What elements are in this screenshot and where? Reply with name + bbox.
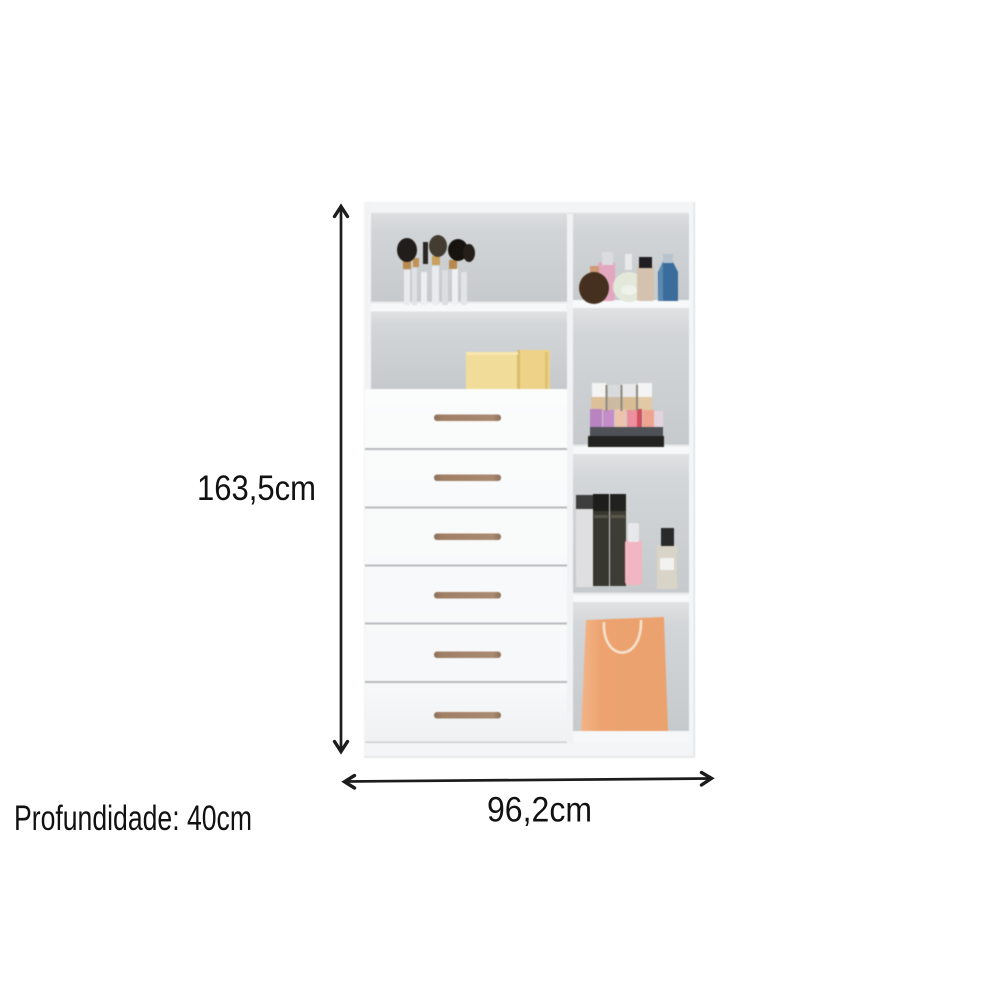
- svg-text:163,5cm: 163,5cm: [197, 469, 316, 508]
- svg-text:Profundidade: 40cm: Profundidade: 40cm: [14, 799, 252, 838]
- svg-text:96,2cm: 96,2cm: [487, 791, 592, 830]
